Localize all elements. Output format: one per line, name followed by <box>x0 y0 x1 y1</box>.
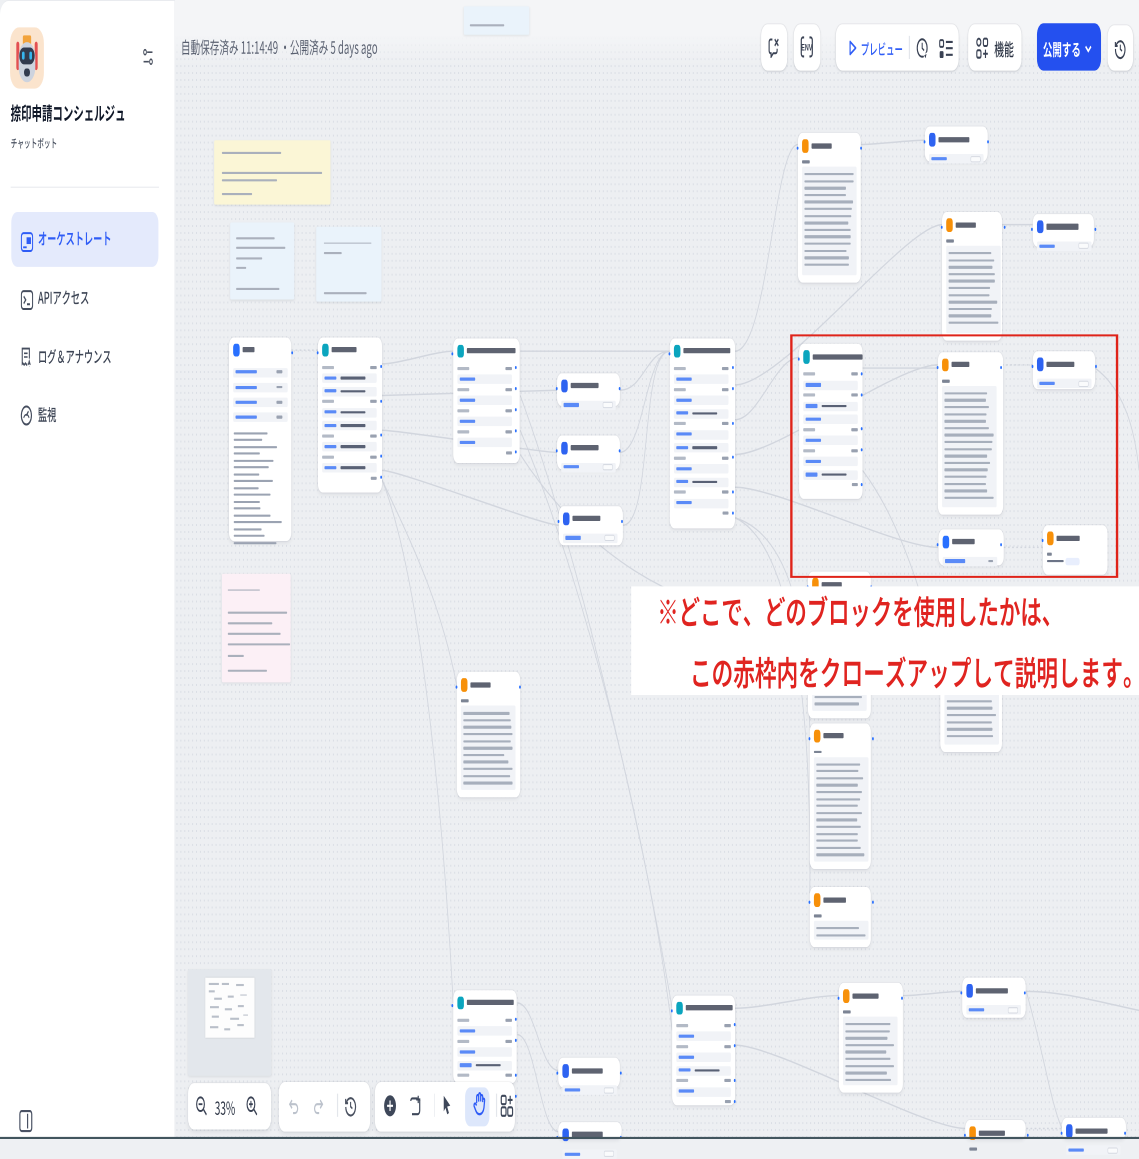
svg-text:ENV: ENV <box>802 42 814 53</box>
